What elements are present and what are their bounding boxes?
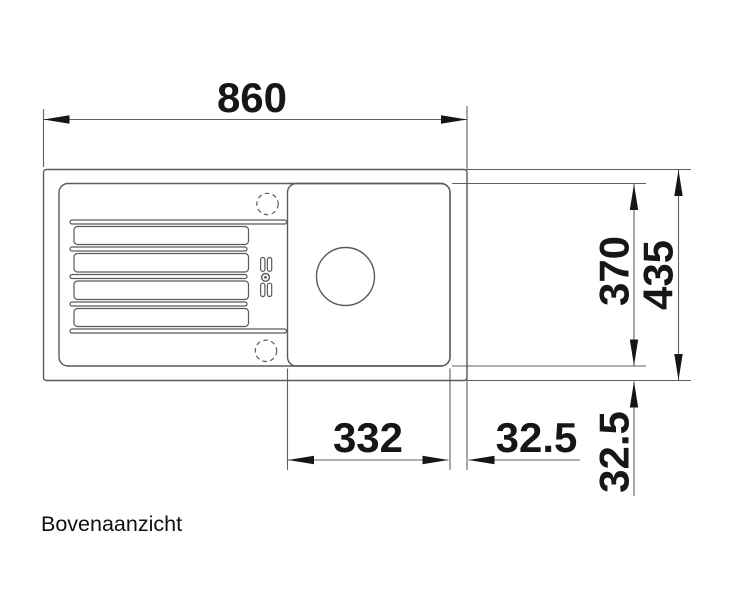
arrow-down bbox=[674, 354, 682, 380]
drainboard-groove bbox=[70, 247, 247, 251]
arrow-right bbox=[441, 115, 467, 123]
drainboard bbox=[70, 220, 287, 333]
dimension-label-32-5-vertical: 32.5 bbox=[591, 411, 638, 493]
drawing-canvas: 860 370 435 32.5 332 32.5 Bovenaanzicht bbox=[0, 0, 751, 599]
drainboard-groove bbox=[70, 275, 247, 279]
arrow-left bbox=[44, 115, 70, 123]
dimension-bottom: 332 32.5 bbox=[288, 369, 581, 471]
arrow-left bbox=[288, 456, 314, 464]
overflow-emblem bbox=[261, 258, 272, 297]
emblem-bar bbox=[261, 258, 265, 272]
emblem-bar bbox=[267, 283, 271, 296]
arrow-left bbox=[469, 456, 495, 464]
drainboard-groove bbox=[70, 220, 287, 224]
dimension-label-370: 370 bbox=[591, 236, 638, 306]
sink-bowl bbox=[288, 184, 451, 367]
arrow-down bbox=[630, 340, 638, 366]
drainboard-groove bbox=[70, 329, 287, 333]
arrow-up bbox=[630, 382, 638, 408]
tap-hole-bottom bbox=[255, 340, 276, 361]
view-caption: Bovenaanzicht bbox=[41, 512, 182, 536]
emblem-bar bbox=[267, 258, 271, 272]
drain-hole bbox=[317, 248, 375, 306]
drainboard-slat bbox=[74, 254, 249, 273]
dimension-label-435: 435 bbox=[635, 240, 682, 310]
drainboard-slat bbox=[74, 227, 249, 245]
drainboard-slat bbox=[74, 281, 249, 300]
dimension-label-32-5-horizontal: 32.5 bbox=[496, 414, 578, 461]
drainboard-groove bbox=[70, 302, 247, 306]
dimension-label-332: 332 bbox=[333, 414, 403, 461]
tap-hole-top bbox=[257, 193, 278, 214]
arrow-up bbox=[674, 170, 682, 196]
arrow-up bbox=[630, 184, 638, 210]
emblem-bar bbox=[261, 283, 265, 296]
dimension-label-860: 860 bbox=[217, 74, 287, 121]
emblem-dot bbox=[264, 276, 267, 279]
drainboard-slat bbox=[74, 309, 249, 327]
sink-technical-drawing: 860 370 435 32.5 332 32.5 Bovenaanzicht bbox=[0, 0, 751, 599]
arrow-right bbox=[423, 456, 449, 464]
